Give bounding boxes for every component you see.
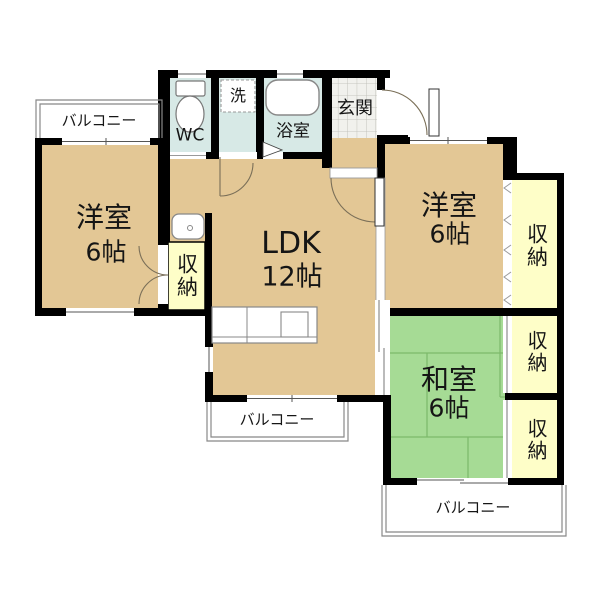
west-room-name: 洋室	[76, 204, 132, 232]
folding-closet-front	[503, 180, 512, 308]
washbasin-icon	[172, 214, 204, 239]
wall-segment	[205, 213, 212, 310]
east-room-name: 洋室	[421, 192, 477, 220]
entrance-step-sill	[330, 168, 377, 178]
sliding-door-ldk-balcony	[247, 395, 337, 402]
storage-east-top-label: 収納	[526, 223, 547, 269]
doorway-wc	[170, 152, 206, 159]
window-ldk-west	[205, 347, 213, 372]
bathtub-icon	[266, 80, 319, 115]
doorway-laundry	[219, 152, 257, 159]
wall-segment	[503, 173, 564, 180]
laundry-label: 洗	[230, 88, 246, 104]
doorway-entrance	[377, 90, 385, 135]
fusuma-ldk-japanese-room	[375, 300, 390, 395]
kitchen-counter	[212, 307, 317, 343]
entrance-door-leaf	[429, 89, 439, 136]
west-room-size: 6帖	[86, 240, 127, 265]
japanese-room-name: 和室	[421, 366, 477, 394]
toilet-icon	[176, 81, 205, 132]
storage-west-label: 収納	[176, 253, 197, 299]
floor-plan: バルコニー 洋室 6帖 WC 洗 浴室 玄関 洋室 6帖 LDK 12帖 和室 …	[0, 0, 600, 600]
entrance-label: 玄関	[337, 100, 373, 118]
sliding-door-japanese-room-balcony	[417, 478, 508, 485]
east-room-size: 6帖	[430, 222, 471, 247]
wall-segment	[385, 308, 564, 316]
entrance-door-arc	[382, 90, 427, 135]
balcony-bottom-right-label: バルコニー	[436, 501, 511, 516]
window-bath	[277, 70, 303, 78]
kitchen-sink-icon	[281, 312, 308, 337]
storage-east-bottom-label: 収納	[526, 418, 546, 462]
ldk-size: 12帖	[261, 264, 322, 291]
wall-segment	[35, 138, 42, 316]
entrance-hall-floor	[330, 138, 377, 170]
wall-segment	[322, 70, 332, 168]
ldk-door-leaf	[375, 178, 384, 226]
wall-segment	[377, 70, 385, 92]
wall-segment	[211, 70, 219, 159]
bath-label: 浴室	[276, 124, 310, 141]
japanese-room-size: 6帖	[429, 396, 470, 421]
ldk-name: LDK	[261, 229, 321, 259]
balcony-top-label: バルコニー	[62, 114, 137, 129]
storage-east-mid-label: 収納	[526, 330, 546, 374]
window-wc	[178, 70, 206, 78]
window-east-room-north	[410, 137, 487, 144]
wall-segment	[505, 393, 564, 400]
wall-segment	[383, 395, 391, 485]
wc-label: WC	[176, 128, 205, 145]
window-west-room-south	[66, 308, 134, 316]
balcony-bottom-label: バルコニー	[240, 413, 315, 428]
wall-segment	[557, 173, 564, 485]
window-west-room-north	[62, 138, 150, 145]
